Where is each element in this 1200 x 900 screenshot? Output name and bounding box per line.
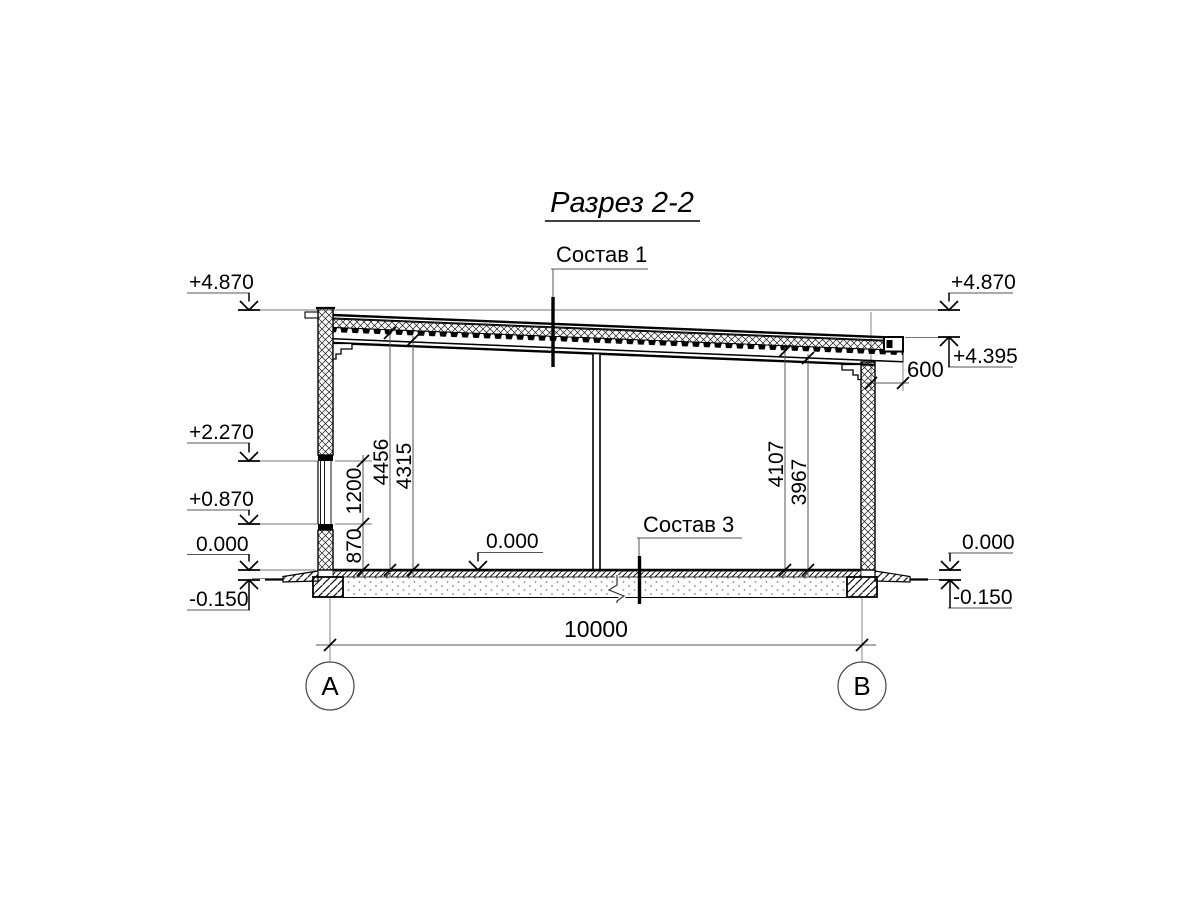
elevation-left-ground: -0.150 bbox=[189, 588, 249, 611]
elevation-left-window-sill: +0.870 bbox=[189, 488, 254, 511]
dim-ceiling-left-1: 4456 bbox=[370, 439, 393, 486]
axis-a-label: A bbox=[321, 671, 339, 701]
elevation-right-ground: -0.150 bbox=[953, 586, 1013, 609]
right-haunch bbox=[842, 365, 861, 380]
floor-subbase bbox=[343, 577, 847, 597]
blind-area-right bbox=[875, 571, 928, 582]
window-sill-block bbox=[318, 524, 333, 530]
dim-ceiling-left-2: 4315 bbox=[393, 443, 416, 490]
dim-overall-width: 10000 bbox=[564, 616, 628, 642]
parapet-flashing bbox=[305, 312, 318, 318]
left-haunch bbox=[333, 344, 352, 360]
dim-window-sill-height: 870 bbox=[343, 528, 366, 563]
drawing-title: Разрез 2-2 bbox=[550, 187, 694, 219]
blind-area-left bbox=[265, 571, 318, 582]
section-drawing: Разрез 2-2 Состав 1 Состав 3 +4.870 +2.2… bbox=[0, 0, 1200, 900]
dim-ceiling-right-1: 4107 bbox=[765, 441, 788, 488]
roof-assembly bbox=[305, 308, 903, 365]
dim-roof-overhang: 600 bbox=[907, 357, 944, 382]
floor-slab bbox=[333, 570, 861, 603]
dim-ceiling-right-2: 3967 bbox=[788, 459, 811, 506]
drawing-sheet: Разрез 2-2 Состав 1 Состав 3 +4.870 +2.2… bbox=[0, 0, 1200, 900]
elevation-right-floor: 0.000 bbox=[962, 531, 1015, 554]
elevation-left-floor: 0.000 bbox=[196, 533, 249, 556]
window-glazing bbox=[321, 461, 332, 524]
elevation-left-top: +4.870 bbox=[189, 271, 254, 294]
right-wall bbox=[842, 362, 875, 570]
elevation-floor-interior: 0.000 bbox=[486, 530, 539, 553]
axis-b-label: B bbox=[853, 671, 870, 701]
dim-window-height: 1200 bbox=[343, 468, 366, 515]
callout-sostav3-label: Состав 3 bbox=[643, 512, 734, 537]
window-head-block bbox=[318, 455, 333, 461]
center-column bbox=[593, 354, 600, 571]
elevation-right-eaves: +4.395 bbox=[953, 345, 1018, 368]
callout-sostav1-label: Состав 1 bbox=[556, 242, 647, 267]
foundation-right bbox=[847, 577, 877, 597]
elevation-left-window-head: +2.270 bbox=[189, 421, 254, 444]
elevation-right-top: +4.870 bbox=[951, 271, 1016, 294]
